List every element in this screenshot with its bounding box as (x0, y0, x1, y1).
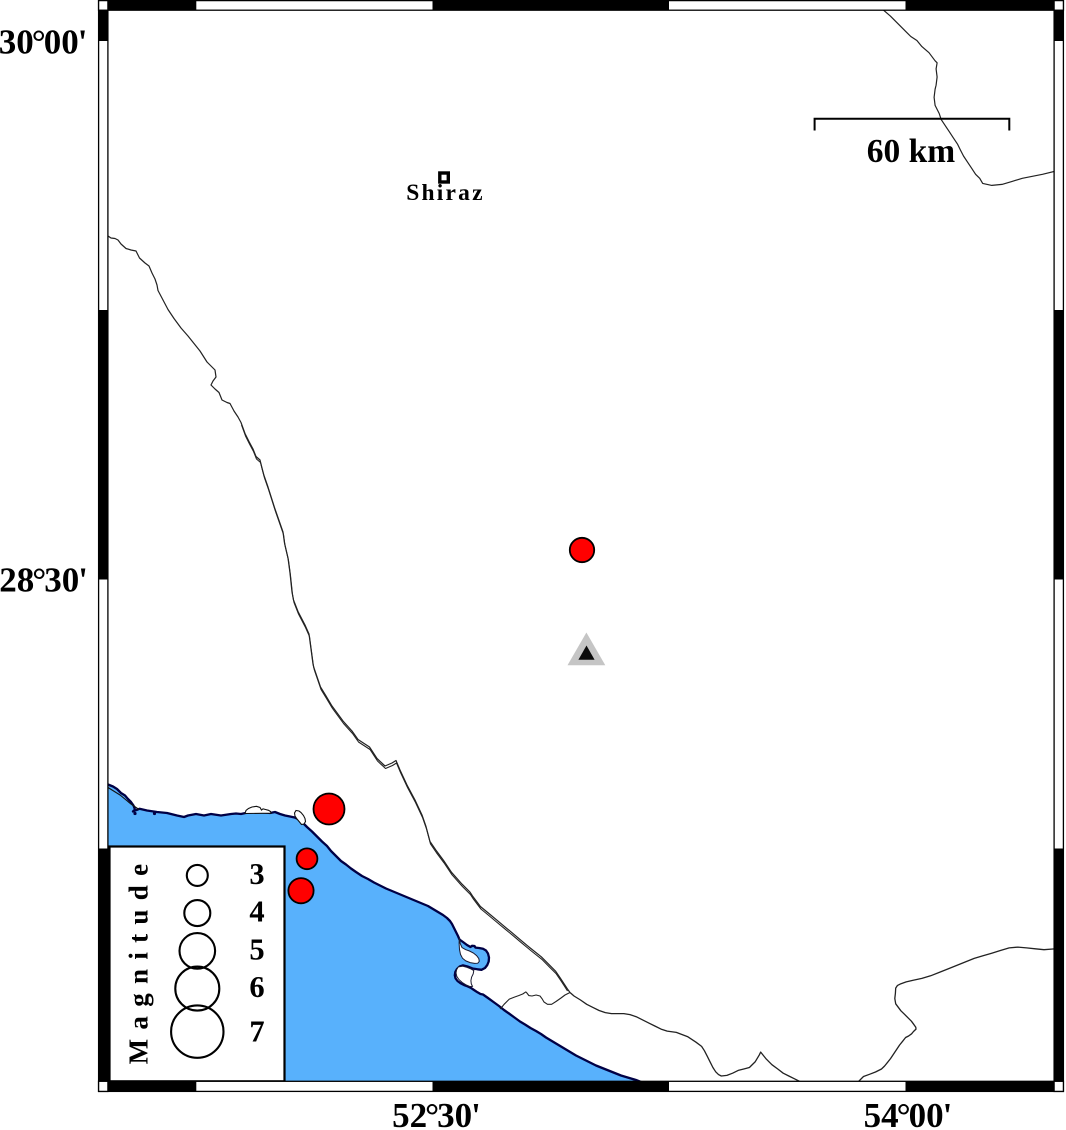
svg-text:30°00': 30°00' (0, 23, 88, 62)
svg-text:7: 7 (249, 1014, 264, 1048)
svg-text:60 km: 60 km (867, 133, 956, 170)
svg-text:5: 5 (249, 932, 264, 966)
svg-text:Shiraz: Shiraz (406, 180, 484, 206)
svg-text:6: 6 (249, 970, 264, 1004)
svg-text:3: 3 (249, 857, 264, 891)
svg-text:Magnitude: Magnitude (124, 855, 154, 1065)
svg-text:4: 4 (249, 895, 264, 929)
svg-text:28°30': 28°30' (0, 561, 88, 600)
svg-text:52°30': 52°30' (392, 1096, 481, 1130)
svg-text:54°00': 54°00' (864, 1096, 953, 1130)
